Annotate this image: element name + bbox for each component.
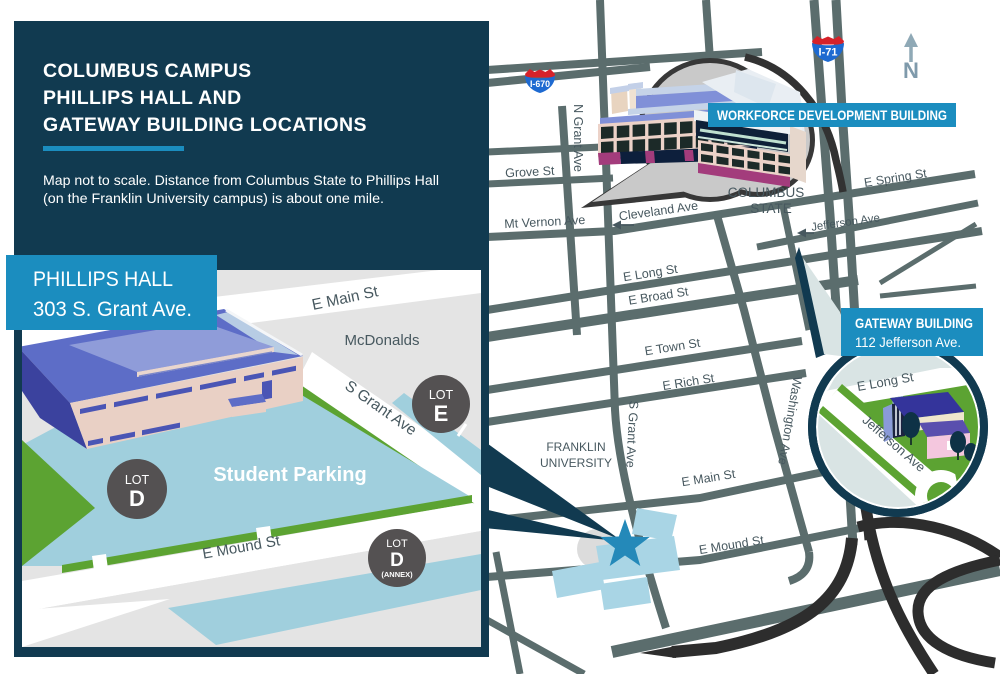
svg-text:N Grant Ave: N Grant Ave (571, 104, 585, 172)
svg-text:STATE: STATE (750, 201, 792, 216)
svg-text:N: N (903, 58, 919, 83)
svg-text:LOT: LOT (125, 473, 150, 487)
svg-text:E: E (434, 401, 449, 426)
svg-text:PHILLIPS HALL: PHILLIPS HALL (33, 268, 173, 291)
svg-text:McDonalds: McDonalds (344, 332, 419, 349)
svg-text:Student Parking: Student Parking (213, 464, 366, 486)
svg-text:FRANKLIN: FRANKLIN (546, 440, 605, 454)
svg-text:I-670: I-670 (530, 79, 550, 89)
svg-text:COLUMBUS: COLUMBUS (728, 185, 805, 200)
svg-text:303 S. Grant Ave.: 303 S. Grant Ave. (33, 298, 192, 321)
svg-text:GATEWAY BUILDING: GATEWAY BUILDING (855, 315, 973, 331)
svg-text:D: D (129, 486, 145, 511)
svg-text:(on the Franklin University ca: (on the Franklin University campus) is a… (43, 190, 384, 206)
svg-text:GATEWAY BUILDING LOCATIONS: GATEWAY BUILDING LOCATIONS (43, 114, 367, 136)
svg-text:Grove St: Grove St (505, 164, 556, 181)
svg-text:(ANNEX): (ANNEX) (381, 570, 413, 579)
svg-text:D: D (390, 550, 404, 571)
svg-text:I-71: I-71 (819, 46, 838, 58)
svg-text:112 Jefferson Ave.: 112 Jefferson Ave. (855, 334, 961, 350)
svg-text:PHILLIPS HALL AND: PHILLIPS HALL AND (43, 87, 242, 109)
svg-text:LOT: LOT (386, 538, 408, 550)
svg-text:WORKFORCE DEVELOPMENT BUILDING: WORKFORCE DEVELOPMENT BUILDING (717, 107, 947, 123)
svg-text:LOT: LOT (429, 388, 454, 402)
svg-text:Map not to scale. Distance fro: Map not to scale. Distance from Columbus… (43, 172, 439, 188)
svg-text:UNIVERSITY: UNIVERSITY (540, 456, 612, 470)
svg-text:COLUMBUS CAMPUS: COLUMBUS CAMPUS (43, 60, 252, 82)
